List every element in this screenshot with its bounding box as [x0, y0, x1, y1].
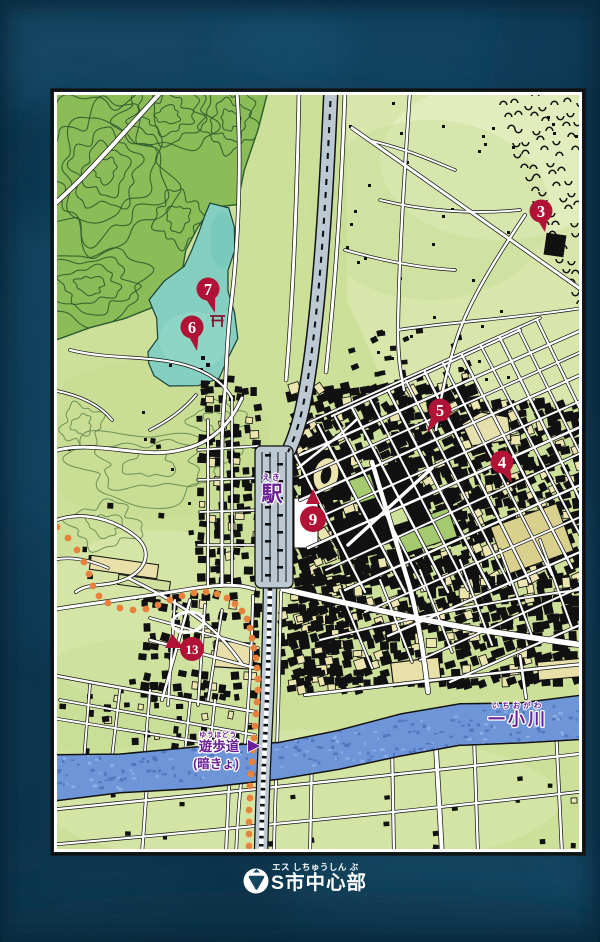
svg-text:遊歩道: 遊歩道: [199, 738, 240, 754]
svg-text:S市中心部: S市中心部: [271, 871, 367, 894]
svg-text:いちおがわ: いちおがわ: [492, 700, 545, 710]
svg-text:4: 4: [498, 453, 506, 472]
svg-text:一小川: 一小川: [488, 710, 548, 729]
svg-text:駅: 駅: [262, 483, 284, 506]
svg-text:ゆうほどう: ゆうほどう: [199, 730, 237, 739]
svg-text:えき: えき: [262, 473, 282, 482]
svg-text:13: 13: [186, 642, 200, 657]
svg-text:7: 7: [204, 280, 212, 299]
svg-text:3: 3: [537, 202, 545, 221]
svg-text:9: 9: [309, 510, 318, 529]
svg-text:6: 6: [188, 318, 196, 337]
svg-text:(暗きょ): (暗きょ): [193, 756, 239, 771]
svg-text:エス しちゅうしん ぶ: エス しちゅうしん ぶ: [272, 862, 359, 872]
svg-text:5: 5: [436, 401, 444, 420]
